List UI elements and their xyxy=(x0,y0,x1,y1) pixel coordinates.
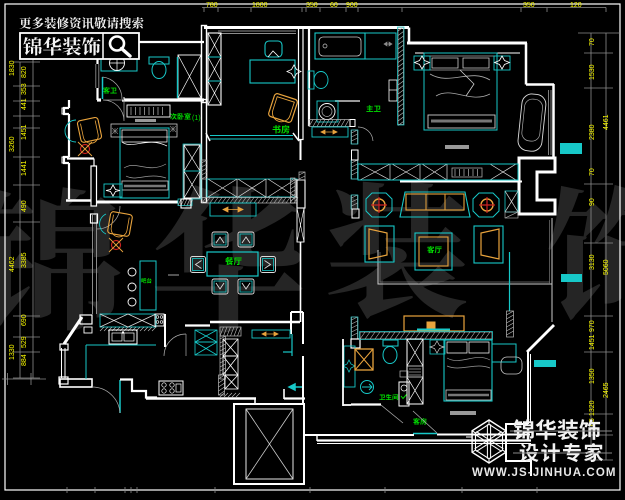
svg-text:70: 70 xyxy=(589,38,596,46)
svg-text:820: 820 xyxy=(21,66,28,78)
svg-text:(1): (1) xyxy=(192,115,201,122)
svg-text:5060: 5060 xyxy=(603,259,610,275)
svg-text:1350: 1350 xyxy=(589,368,596,384)
svg-text:441: 441 xyxy=(21,98,28,110)
svg-text:120: 120 xyxy=(570,2,582,9)
svg-text:WWW.JS-JINHUA.COM: WWW.JS-JINHUA.COM xyxy=(472,467,617,479)
svg-text:690: 690 xyxy=(21,314,28,326)
svg-text:900: 900 xyxy=(346,2,358,9)
svg-text:3260: 3260 xyxy=(9,136,16,152)
svg-text:780: 780 xyxy=(206,2,218,9)
svg-text:2465: 2465 xyxy=(603,382,610,398)
svg-text:1451: 1451 xyxy=(589,334,596,350)
svg-text:1441: 1441 xyxy=(21,160,28,176)
svg-text:4461: 4461 xyxy=(603,114,610,130)
svg-text:1330: 1330 xyxy=(9,344,16,360)
svg-text:1451: 1451 xyxy=(21,124,28,140)
svg-text:1320: 1320 xyxy=(589,400,596,416)
svg-text:884: 884 xyxy=(21,354,28,366)
svg-text:1830: 1830 xyxy=(9,60,16,76)
svg-text:970: 970 xyxy=(589,320,596,332)
svg-text:350: 350 xyxy=(306,2,318,9)
svg-text:490: 490 xyxy=(21,200,28,212)
svg-text:90: 90 xyxy=(589,198,596,206)
svg-text:1800: 1800 xyxy=(252,2,268,9)
svg-text:60: 60 xyxy=(330,2,338,9)
svg-text:2380: 2380 xyxy=(589,124,596,140)
svg-text:353: 353 xyxy=(21,83,28,95)
svg-text:529: 529 xyxy=(21,336,28,348)
svg-text:70: 70 xyxy=(589,168,596,176)
svg-text:3130: 3130 xyxy=(589,254,596,270)
svg-text:1530: 1530 xyxy=(589,64,596,80)
svg-text:4462: 4462 xyxy=(9,256,16,272)
svg-text:3385: 3385 xyxy=(21,252,28,268)
svg-text:350: 350 xyxy=(523,2,535,9)
